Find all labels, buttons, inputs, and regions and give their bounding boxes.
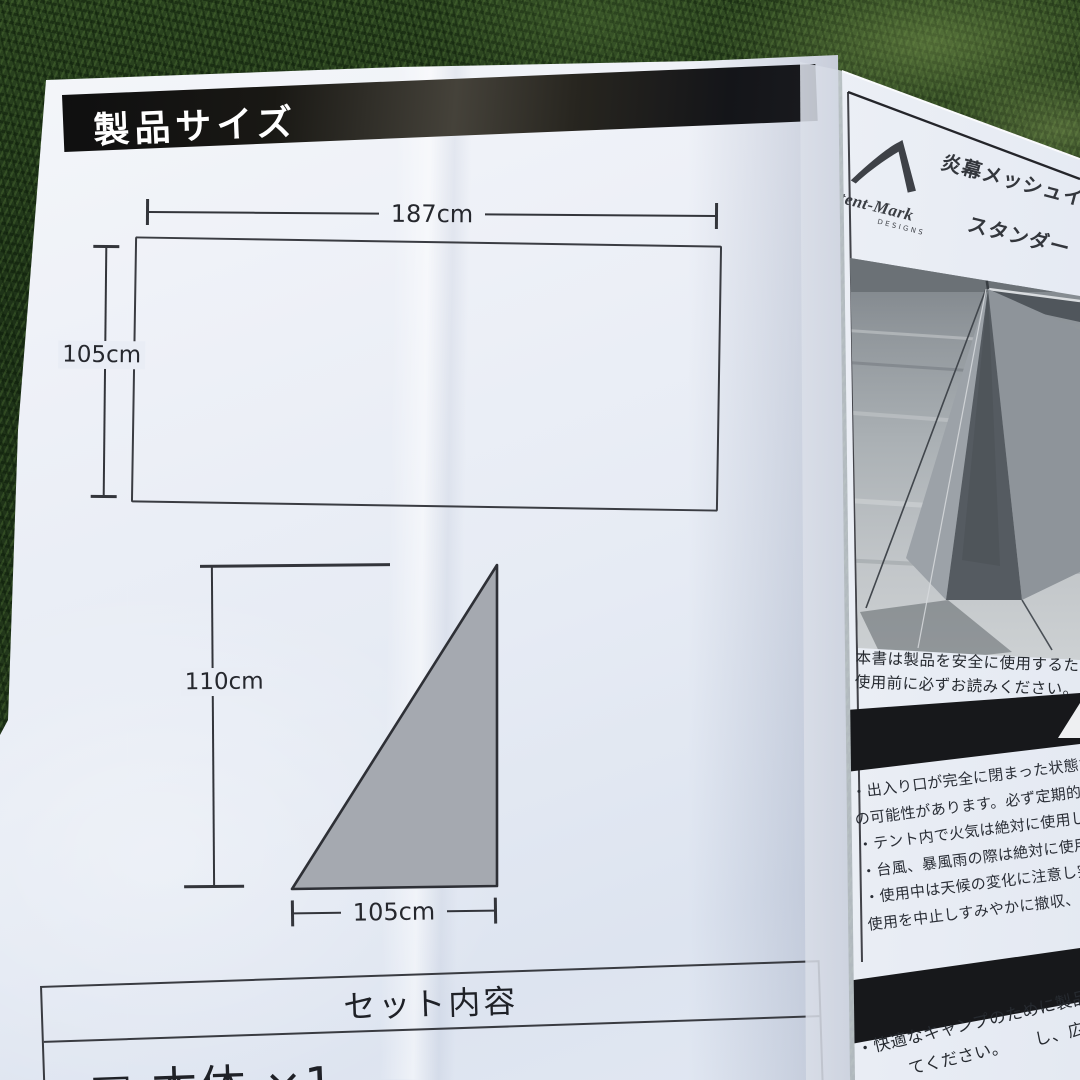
dimension-height-110: 110cm <box>182 566 244 888</box>
dimension-tick <box>91 495 117 498</box>
dimension-tick <box>715 203 718 229</box>
dimension-line <box>294 911 341 914</box>
dimension-line <box>447 909 494 912</box>
dimension-line <box>149 211 379 215</box>
dimension-width-187: 187cm <box>146 199 718 229</box>
dimension-line <box>211 566 216 885</box>
dimension-line <box>102 248 107 496</box>
photo-scene: 製品サイズ 187cm 105cm 110cm 105cm <box>0 0 1080 1080</box>
dimension-line <box>485 213 715 217</box>
dimension-height-105: 105cm <box>91 245 120 498</box>
dimension-tick <box>184 885 244 888</box>
tent-photo <box>840 250 1080 670</box>
dimension-label: 105cm <box>341 897 448 926</box>
dimension-label: 110cm <box>181 668 268 697</box>
dimension-label: 105cm <box>58 341 145 370</box>
dimension-label: 187cm <box>379 200 486 229</box>
dimension-base-105: 105cm <box>291 898 497 927</box>
rectangle-diagram-outline <box>131 236 722 511</box>
set-contents-item: □ 本体 ×1 <box>88 1031 822 1080</box>
dimension-tick <box>494 898 497 924</box>
